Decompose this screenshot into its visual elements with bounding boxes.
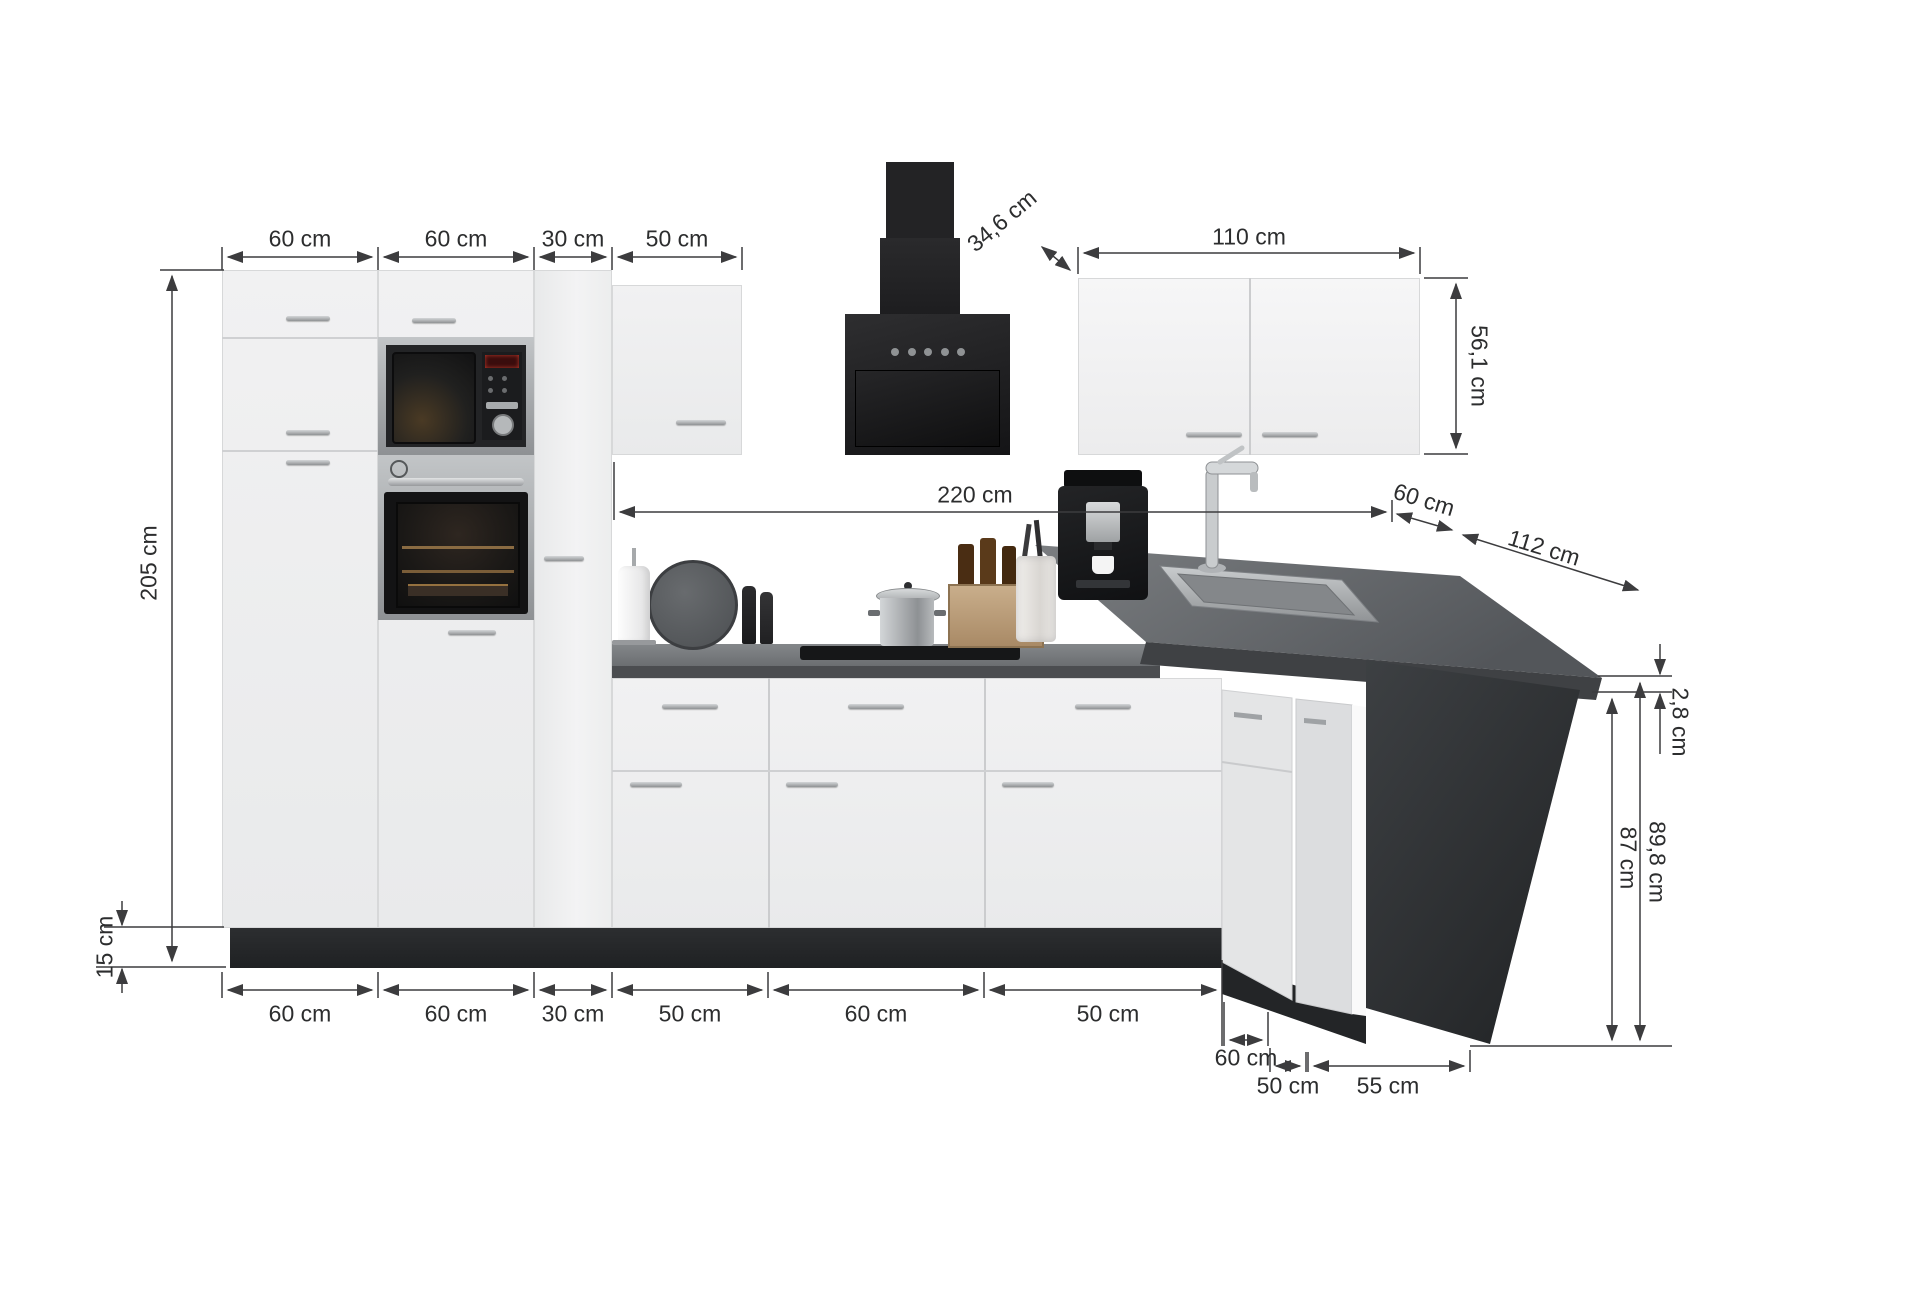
dim-label-bottom-30: 30 cm <box>542 1003 605 1026</box>
corner-plinth <box>1222 962 1366 1044</box>
coffee-cup <box>1092 556 1114 574</box>
sink-bowl <box>1178 574 1354 615</box>
microwave-bar-button <box>486 402 518 409</box>
door-handle <box>286 316 330 321</box>
dim-label-top-60-1: 60 cm <box>269 228 332 251</box>
cabinet-gap <box>1352 705 1366 1016</box>
microwave-button <box>502 376 507 381</box>
dim-label-right-wall-height: 56,1 cm <box>1468 325 1491 407</box>
dim-label-return-bottom-55: 55 cm <box>1357 1075 1420 1098</box>
drawer-divider <box>1222 762 1292 772</box>
dim-label-bottom-50-2: 50 cm <box>1077 1003 1140 1026</box>
hood-chimney-lower <box>880 238 960 316</box>
oven-window <box>396 502 520 608</box>
hood-glass <box>855 370 1000 447</box>
dim-label-worktop-thickness: 2,8 cm <box>1669 687 1692 756</box>
dim-label-top-30: 30 cm <box>542 228 605 251</box>
pepper-mill <box>742 586 756 644</box>
base-cabinet-run <box>612 678 1222 928</box>
door-handle <box>676 420 726 425</box>
coffee-machine <box>1058 486 1148 600</box>
oven-rack <box>402 546 514 549</box>
tall-cabinet-30 <box>534 270 612 928</box>
built-in-microwave <box>378 337 534 455</box>
dim-label-bottom-50-1: 50 cm <box>659 1003 722 1026</box>
door-divider <box>222 337 378 339</box>
dim-label-bottom-60-1: 60 cm <box>269 1003 332 1026</box>
hood-buttons <box>891 348 965 357</box>
plinth <box>230 928 1222 968</box>
dim-label-return-depth: 112 cm <box>1505 526 1582 570</box>
oven-handle <box>388 478 524 486</box>
drawer-handle <box>1075 704 1131 709</box>
unit-divider <box>984 678 986 928</box>
door-handle <box>286 460 330 465</box>
microwave-knob <box>492 414 514 436</box>
dim-label-worktop-underside-height: 87 cm <box>1617 827 1640 890</box>
pot-handle <box>868 610 880 616</box>
microwave-button <box>502 388 507 393</box>
wall-cabinet-110 <box>1078 278 1420 455</box>
return-cabinet-front <box>1296 699 1352 1014</box>
faucet <box>1198 448 1258 573</box>
dim-label-bottom-60-2: 60 cm <box>425 1003 488 1026</box>
drawer-handle <box>848 704 904 709</box>
drawer-divider <box>612 770 1222 772</box>
dim-label-worktop-total-height: 89,8 cm <box>1646 821 1669 903</box>
cooktop <box>800 646 1020 660</box>
dim-label-corner-width: 60 cm <box>1215 1047 1278 1070</box>
door-handle <box>544 556 584 561</box>
dim-label-counter-depth: 60 cm <box>1391 480 1458 520</box>
return-side-panel <box>1366 660 1580 1044</box>
dim-label-wall-run-width: 220 cm <box>937 484 1012 507</box>
door-handle <box>286 430 330 435</box>
pepper-mill <box>760 592 773 644</box>
oven-tray <box>408 584 508 596</box>
dim-label-top-60-2: 60 cm <box>425 228 488 251</box>
microwave-button <box>488 388 493 393</box>
unit-divider <box>768 678 770 928</box>
dim-label-tall-height: 205 cm <box>138 525 161 600</box>
microwave-button <box>488 376 493 381</box>
wall-cabinet-50 <box>612 285 742 455</box>
sink <box>1160 566 1378 622</box>
door-handle <box>630 782 682 787</box>
door-handle <box>1262 432 1318 437</box>
door-divider <box>1249 278 1251 455</box>
drawer-handle <box>662 704 718 709</box>
worktop-edge <box>612 666 1160 678</box>
pot-handle <box>934 610 946 616</box>
microwave-display <box>485 355 519 368</box>
dim-label-right-wall-width: 110 cm <box>1212 226 1286 249</box>
door-handle <box>1002 782 1054 787</box>
dim-label-plinth-height: 15 cm <box>94 916 117 979</box>
towel-holder-base <box>612 640 656 645</box>
dim-label-hood-depth: 34,6 cm <box>963 186 1040 256</box>
door-handle <box>448 630 496 635</box>
hood-chimney-upper <box>886 162 954 240</box>
door-handle <box>412 318 456 323</box>
door-handle <box>1186 432 1242 437</box>
microwave-window <box>392 352 476 444</box>
microwave-controls <box>482 352 522 440</box>
drip-tray <box>1076 580 1130 588</box>
door-handle <box>1234 712 1262 720</box>
cooking-pot <box>880 598 934 646</box>
dim-label-return-bottom-50: 50 cm <box>1257 1075 1320 1098</box>
door-handle <box>1304 718 1326 725</box>
marble-utensil-jar <box>1016 556 1056 642</box>
door-divider <box>222 450 378 452</box>
dim-label-top-50: 50 cm <box>646 228 709 251</box>
oven-rack <box>402 570 514 573</box>
range-hood <box>845 314 1010 455</box>
oven-glass <box>384 492 528 614</box>
coffee-machine-chrome <box>1086 502 1120 542</box>
door-handle <box>786 782 838 787</box>
dim-label-bottom-60-3: 60 cm <box>845 1003 908 1026</box>
paper-towel-roll <box>618 566 650 642</box>
microwave-fascia <box>386 345 526 447</box>
tall-cabinet-fridge <box>222 270 378 928</box>
round-serving-board <box>648 560 738 650</box>
built-in-oven <box>378 455 534 620</box>
kitchen-dimension-diagram: 60 cm 60 cm 30 cm 50 cm 34,6 cm 110 cm 5… <box>0 0 1920 1307</box>
corner-cabinet-front <box>1222 690 1292 1000</box>
coffee-spout <box>1094 542 1112 550</box>
oven-fan-icon <box>390 460 408 478</box>
